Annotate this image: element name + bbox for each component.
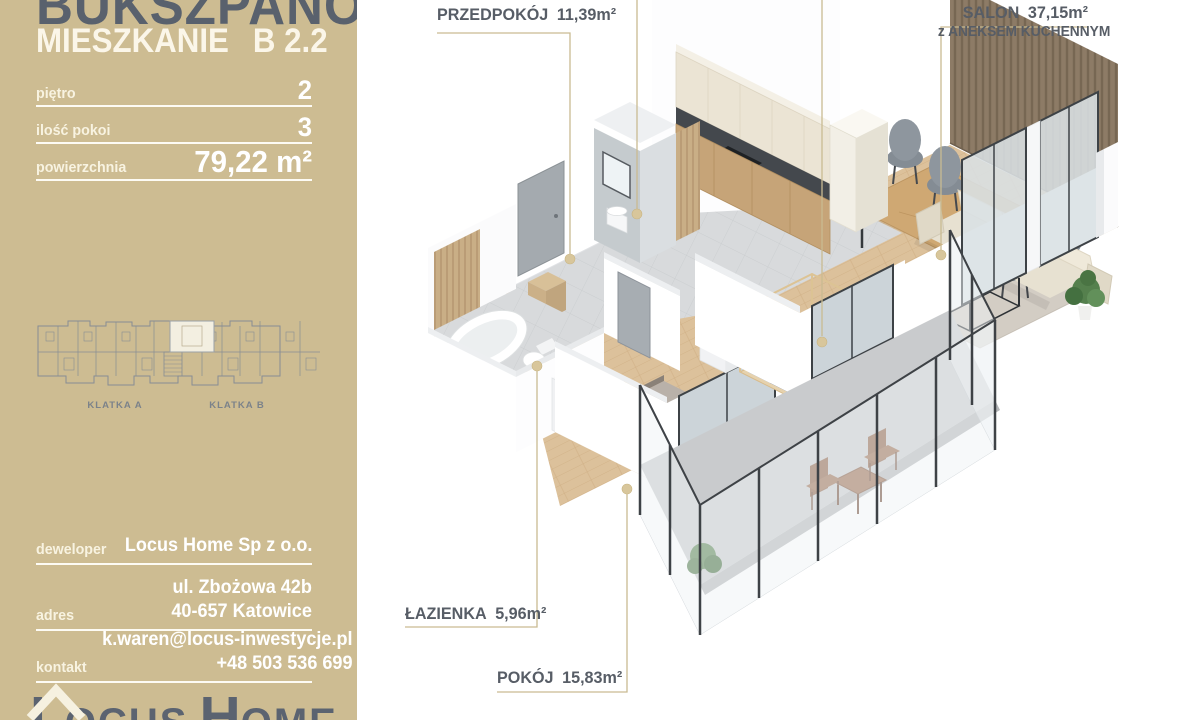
brochure-page: PRZEDPOKÓJ11,39m² SALON37,15m² z ANEKSEM… [0,0,1190,720]
klatka-b-label: KLATKA B [209,400,265,411]
info-row-developer: deweloper Locus Home Sp z o.o. [36,534,312,565]
spec-label: piętro [36,85,76,102]
room-name: PRZEDPOKÓJ [437,5,548,24]
sidebar: BUKSZPANOWA MIESZKANIEB 2.2 piętro 2 ilo… [0,0,357,720]
room-label-lazienka: ŁAZIENKA5,96m² [405,604,546,624]
building-schematic: KLATKA A KLATKA B [24,312,334,416]
info-value: ul. Zbożowa 42b 40-657 Katowice [172,576,312,624]
apartment-title: MIESZKANIEB 2.2 [36,22,328,61]
apartment-code: B 2.2 [253,22,328,60]
info-row-contact: kontakt k.waren@locus-inwestycje.pl +48 … [36,628,312,683]
spec-value: 79,22 m² [194,148,312,176]
room-area: 15,83m² [562,668,622,687]
spec-label: ilość pokoi [36,122,110,139]
info-value: Locus Home Sp z o.o. [124,534,312,558]
room-area: 5,96m² [495,604,546,623]
info-label: kontakt [36,659,87,676]
room-area: 37,15m² [1028,3,1088,22]
room-name: ŁAZIENKA [405,604,487,623]
spec-value: 2 [298,78,312,102]
spec-row-rooms: ilość pokoi 3 [36,115,312,144]
room-area: 11,39m² [557,5,616,24]
entrance-door [518,161,564,276]
highlighted-unit [170,321,214,352]
spec-value: 3 [298,115,312,139]
room-subtitle: z ANEKSEM KUCHENNYM [938,24,1088,40]
room-name: POKÓJ [497,668,554,687]
room-label-salon: SALON37,15m² z ANEKSEM KUCHENNYM [938,3,1088,40]
developer-logo: LOCUS HOME [30,684,338,720]
spec-row-floor: piętro 2 [36,78,312,107]
info-label: deweloper [36,541,106,558]
info-row-address: adres ul. Zbożowa 42b 40-657 Katowice [36,576,312,631]
klatka-a-label: KLATKA A [87,400,142,411]
room-label-przedpokoj: PRZEDPOKÓJ11,39m² [437,5,616,25]
logo-house-icon [22,678,92,720]
info-value: k.waren@locus-inwestycje.pl +48 503 536 … [103,628,353,676]
room-label-pokoj: POKÓJ15,83m² [497,668,622,688]
info-label: adres [36,607,74,624]
room-name: SALON [963,3,1020,22]
spec-label: powierzchnia [36,159,126,176]
apartment-word: MIESZKANIE [36,22,229,60]
spec-row-area: powierzchnia 79,22 m² [36,148,312,181]
